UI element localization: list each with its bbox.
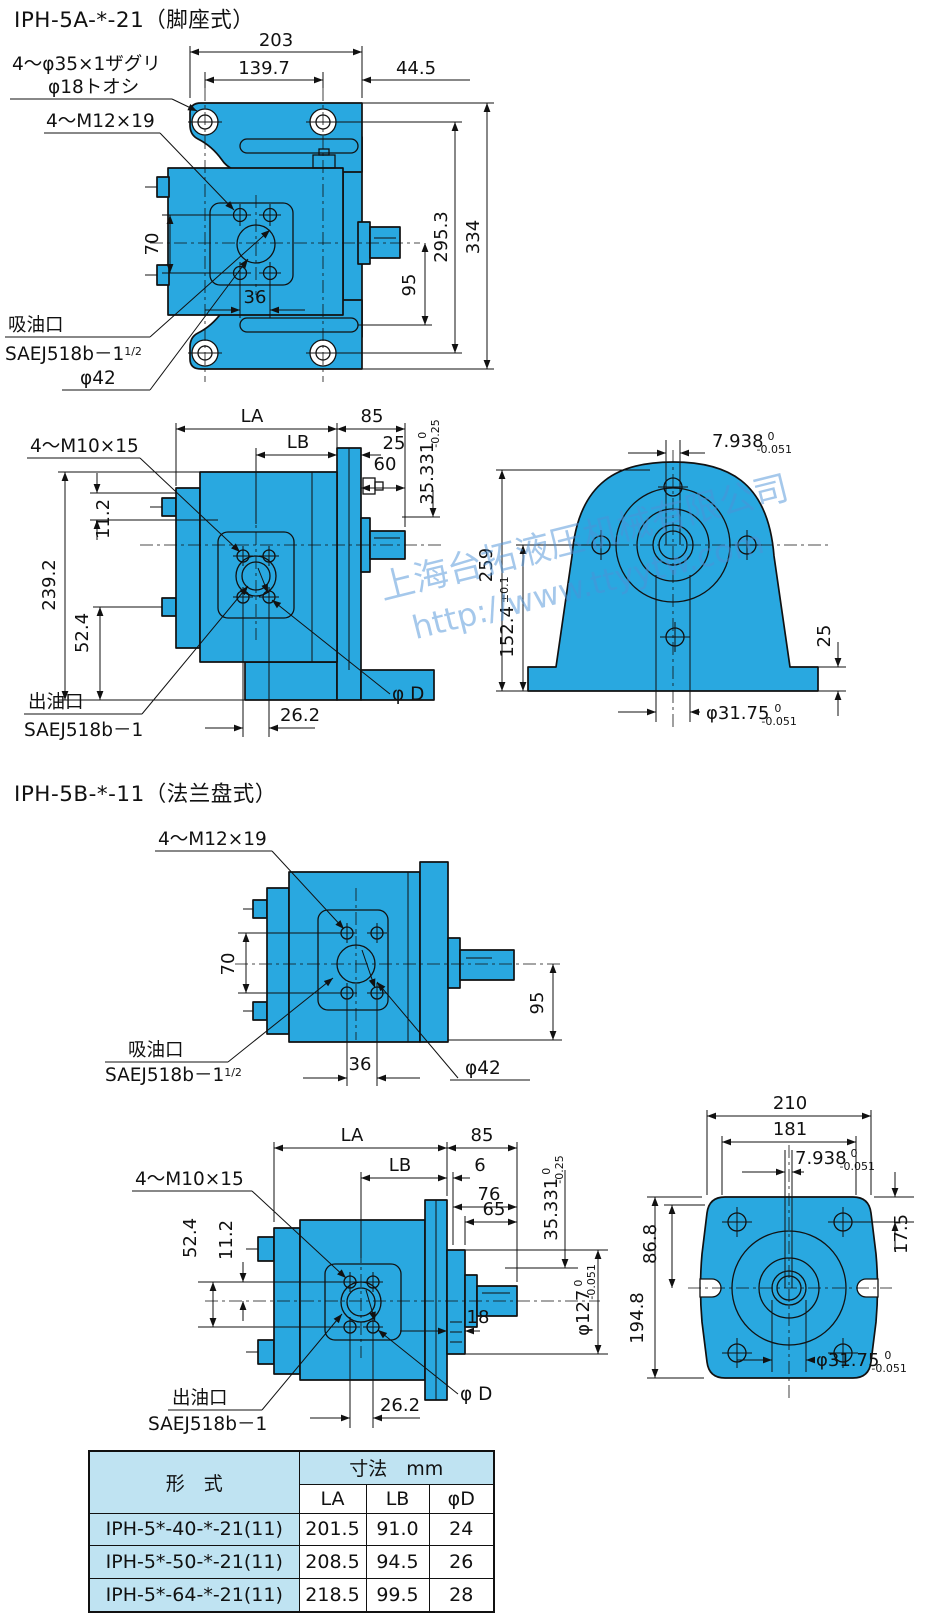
shaft <box>370 227 400 258</box>
dim-36: 36 <box>244 287 267 308</box>
model-cell: IPH-5*-64-*-21(11) <box>89 1578 299 1612</box>
phi-d-label: φ D <box>392 684 424 705</box>
dim-334: 334 <box>463 220 484 254</box>
table-col-lb: LB <box>366 1484 429 1513</box>
dim-181: 181 <box>773 1119 807 1140</box>
dim-18: 18 <box>467 1307 490 1328</box>
dim-35-331: 35.3310-0.25 <box>416 419 442 504</box>
dim-36: 36 <box>349 1054 372 1075</box>
phid-cell: 24 <box>429 1513 494 1545</box>
suction-port-spec: SAEJ518b－11/2 <box>105 1065 242 1086</box>
outlet-port-label: 出油口 <box>28 692 84 713</box>
outlet-port-spec: SAEJ518b－1 <box>148 1414 267 1435</box>
shaft-collar <box>448 938 460 988</box>
dim-6: 6 <box>474 1155 485 1176</box>
dim-295-3: 295.3 <box>431 211 452 263</box>
dim-26-2: 26.2 <box>380 1395 420 1416</box>
bolt-spec-label: 4～M12×19 <box>46 111 155 132</box>
dim-210: 210 <box>773 1093 807 1114</box>
phid-cell: 28 <box>429 1578 494 1612</box>
foot-plate-top <box>190 103 362 172</box>
dim-70: 70 <box>218 953 239 976</box>
counterbore-label-line1: 4～φ35×1ザグリ <box>12 54 161 75</box>
dim-70: 70 <box>142 233 163 256</box>
lb-cell: 91.0 <box>366 1513 429 1545</box>
bolt-spec-label: 4～M10×15 <box>30 436 139 457</box>
lb-cell: 99.5 <box>366 1578 429 1612</box>
catalog-page: IPH-5A-*-21（脚座式） IPH-5B-*-11（法兰盘式） <box>0 0 952 1615</box>
phi42-label: φ42 <box>80 368 116 389</box>
table-row: IPH-5*-64-*-21(11) 218.5 99.5 28 <box>89 1578 494 1612</box>
model-cell: IPH-5*-50-*-21(11) <box>89 1545 299 1578</box>
dim-52-4: 52.4 <box>72 613 93 653</box>
dim-26-2: 26.2 <box>280 705 320 726</box>
dim-85: 85 <box>361 406 384 427</box>
dim-86-8: 86.8 <box>640 1224 661 1264</box>
la-cell: 201.5 <box>299 1513 366 1545</box>
dim-lb: LB <box>389 1155 411 1176</box>
dim-25: 25 <box>383 433 406 454</box>
bolt-spec-label: 4～M10×15 <box>135 1169 244 1190</box>
pump-body-shapes <box>243 862 514 1042</box>
drawing-canvas: IPH-5A-*-21（脚座式） IPH-5B-*-11（法兰盘式） <box>0 0 952 1615</box>
lb-cell: 94.5 <box>366 1545 429 1578</box>
phi-d-label: φ D <box>460 1384 492 1405</box>
bearing-housing <box>447 1250 465 1354</box>
pump-body-shapes <box>145 103 400 369</box>
table-header-dims: 寸法 mm <box>299 1451 494 1484</box>
table-col-la: LA <box>299 1484 366 1513</box>
dim-lb: LB <box>287 432 309 453</box>
dim-la: LA <box>241 406 264 427</box>
drawing-5b-side-view: LA 85 LB 6 76 65 35.3310-0.25 φ1270-0.05… <box>132 1125 608 1435</box>
suction-port-spec: SAEJ518b－11/2 <box>5 344 142 365</box>
dim-60: 60 <box>374 454 397 475</box>
dim-7-938: 7.9380-0.051 <box>712 430 792 456</box>
dim-phi31-75: φ31.750-0.051 <box>706 702 797 728</box>
bolt-spec-label: 4～M12×19 <box>158 829 267 850</box>
table-col-phid: φD <box>429 1484 494 1513</box>
la-cell: 208.5 <box>299 1545 366 1578</box>
dim-203: 203 <box>259 30 293 51</box>
dim-11-2: 11.2 <box>216 1220 237 1260</box>
dim-25: 25 <box>814 625 835 648</box>
drawing-5a-top-view: 203 139.7 44.5 70 36 95 295.3 334 4～φ35×… <box>5 30 494 390</box>
model-cell: IPH-5*-40-*-21(11) <box>89 1513 299 1545</box>
table-header-row-1: 形 式 寸法 mm <box>89 1451 494 1484</box>
pump-housing <box>289 872 420 1042</box>
dim-194-8: 194.8 <box>627 1292 648 1344</box>
dim-44-5: 44.5 <box>396 58 436 79</box>
dim-35-331: 35.3310-0.25 <box>540 1155 566 1240</box>
dim-la: LA <box>341 1125 364 1146</box>
counterbore-label-line2: φ18トオシ <box>48 77 139 98</box>
drawing-5b-top-view: 70 95 36 4～M12×19 吸油口 SAEJ518b－11/2 φ42 <box>105 829 562 1086</box>
dim-17-5: 17.5 <box>891 1214 912 1254</box>
suction-port-label: 吸油口 <box>128 1040 184 1061</box>
dim-139-7: 139.7 <box>238 58 290 79</box>
dim-phi127: φ1270-0.051 <box>572 1264 598 1336</box>
dimension-table: 形 式 寸法 mm LA LB φD IPH-5*-40-*-21(11) 20… <box>88 1450 495 1613</box>
flange-plate <box>420 862 448 1042</box>
suction-port-label: 吸油口 <box>8 315 64 336</box>
dim-95: 95 <box>527 992 548 1015</box>
table-row: IPH-5*-50-*-21(11) 208.5 94.5 26 <box>89 1545 494 1578</box>
section-b-title: IPH-5B-*-11（法兰盘式） <box>14 782 277 807</box>
drawing-5b-end-view: 210 181 7.9380-0.051 17.5 86.8 194.8 φ31… <box>627 1093 914 1402</box>
dim-65: 65 <box>483 1199 506 1220</box>
la-cell: 218.5 <box>299 1578 366 1612</box>
dim-239-2: 239.2 <box>39 559 60 611</box>
table-header-model: 形 式 <box>89 1451 299 1513</box>
pump-housing <box>300 1220 425 1380</box>
outlet-port-label: 出油口 <box>172 1388 228 1409</box>
table-row: IPH-5*-40-*-21(11) 201.5 91.0 24 <box>89 1513 494 1545</box>
dim-85: 85 <box>471 1125 494 1146</box>
section-a-title: IPH-5A-*-21（脚座式） <box>14 8 254 33</box>
dim-11-2: 11.2 <box>93 499 114 539</box>
phi42-label: φ42 <box>465 1058 501 1079</box>
phid-cell: 26 <box>429 1545 494 1578</box>
dim-95: 95 <box>399 274 420 297</box>
dim-52-4: 52.4 <box>180 1218 201 1258</box>
shaft <box>460 950 514 980</box>
dim-7-938: 7.9380-0.051 <box>795 1147 875 1173</box>
outlet-port-spec: SAEJ518b－1 <box>24 720 143 741</box>
